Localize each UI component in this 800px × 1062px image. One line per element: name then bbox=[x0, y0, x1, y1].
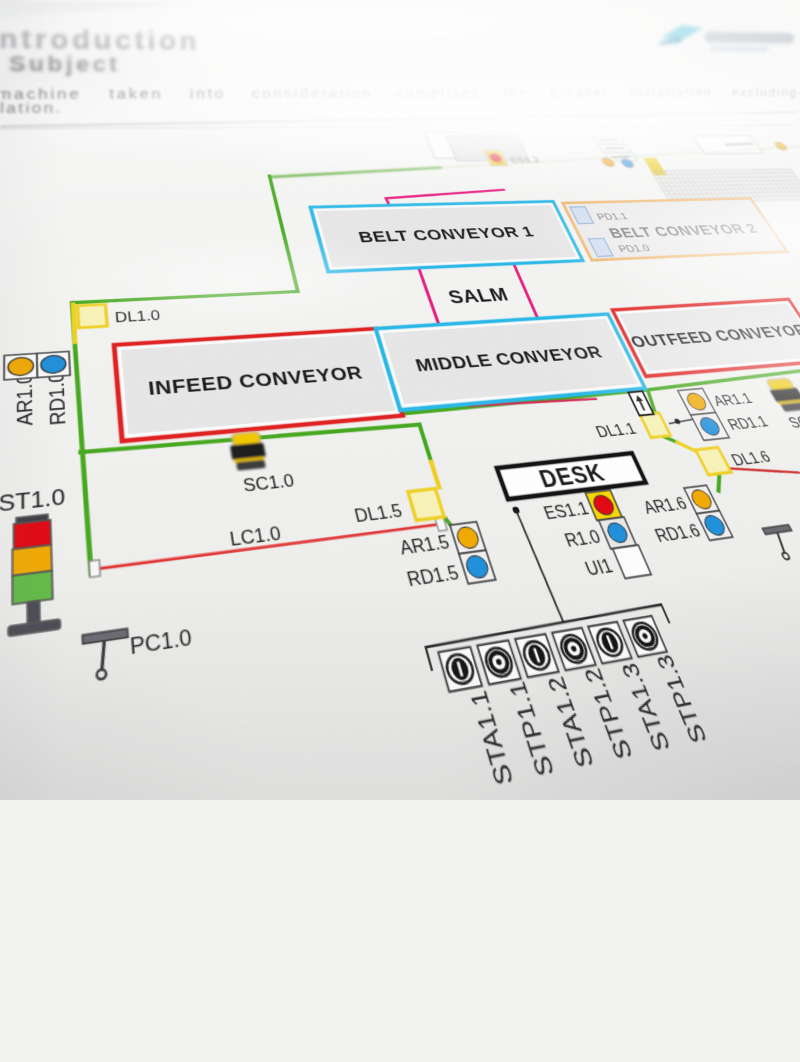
svg-text:PD1.1: PD1.1 bbox=[595, 212, 630, 223]
svg-text:PD1.0: PD1.0 bbox=[617, 243, 653, 255]
svg-text:UI1: UI1 bbox=[582, 556, 616, 580]
svg-text:SALM: SALM bbox=[446, 285, 512, 308]
svg-text:RD1.6: RD1.6 bbox=[652, 521, 704, 546]
svg-text:PC1.0: PC1.0 bbox=[129, 624, 193, 660]
svg-text:ST1.0: ST1.0 bbox=[0, 485, 66, 518]
svg-text:SC1.0: SC1.0 bbox=[242, 471, 296, 496]
svg-text:DL1.6: DL1.6 bbox=[729, 448, 774, 469]
svg-text:AR1.6: AR1.6 bbox=[640, 494, 690, 518]
svg-text:AR1.1: AR1.1 bbox=[710, 391, 755, 410]
svg-text:Subject: Subject bbox=[9, 51, 120, 76]
svg-text:ES1.1: ES1.1 bbox=[541, 499, 592, 524]
svg-text:DL1.1: DL1.1 bbox=[593, 420, 639, 441]
svg-text:AR1.5: AR1.5 bbox=[397, 532, 452, 559]
svg-text:DL1.5: DL1.5 bbox=[353, 501, 405, 527]
svg-text:RD1.1: RD1.1 bbox=[725, 414, 771, 434]
svg-text:RD1.5: RD1.5 bbox=[405, 562, 462, 591]
svg-text:R1.0: R1.0 bbox=[562, 527, 604, 552]
svg-text:DL1.0: DL1.0 bbox=[114, 308, 161, 326]
svg-text:machine taken into considerati: machine taken into consideration compris… bbox=[0, 85, 800, 103]
svg-text:lation.: lation. bbox=[0, 99, 62, 117]
svg-text:AR1.0: AR1.0 bbox=[13, 373, 38, 427]
svg-text:SC1.1: SC1.1 bbox=[786, 412, 800, 431]
svg-text:RD1.0: RD1.0 bbox=[45, 372, 71, 426]
